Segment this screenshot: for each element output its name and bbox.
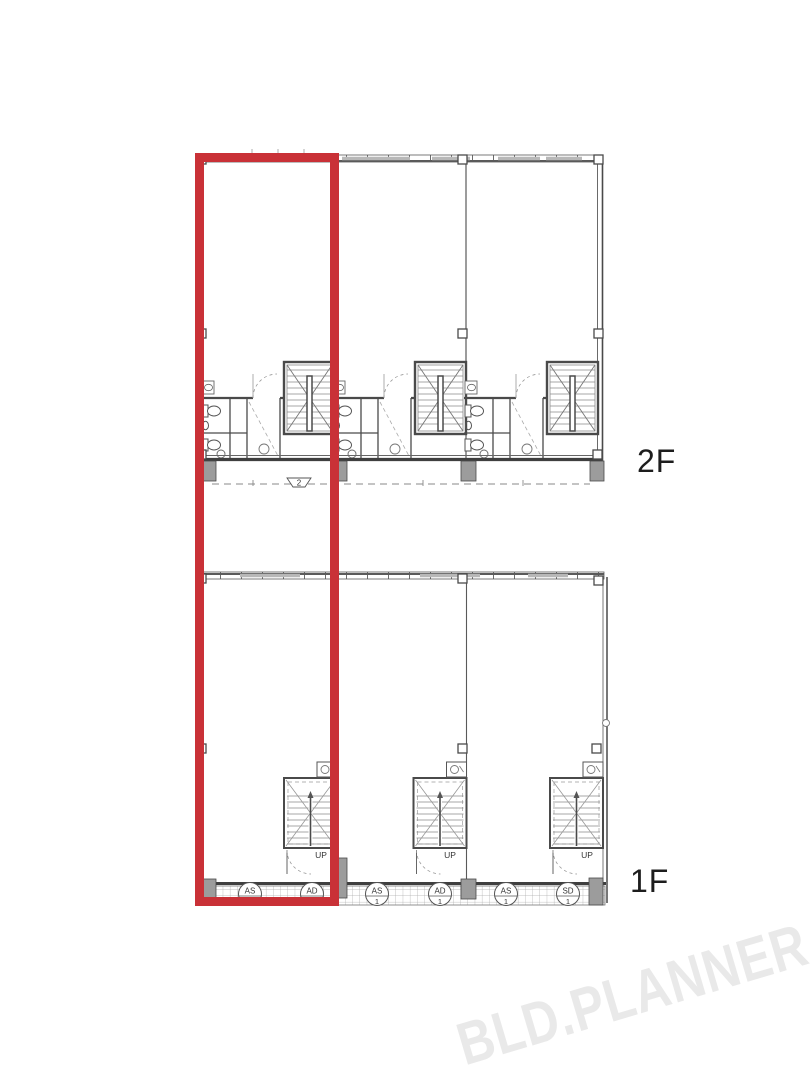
badge-code: AD [434,887,445,896]
floor-plans-drawing: 2 UP UP UP [0,0,810,1080]
porch-badge: SD 1 [557,883,580,907]
1f-unit-left-interior [284,762,337,874]
1f-unit-middle-interior [414,762,467,874]
2f-unit-middle-interior [332,362,466,460]
porch-badge: AS 1 [366,883,389,907]
badge-number: 1 [566,897,570,906]
2f-unit-left-interior [201,362,335,460]
floor-label-2f: 2F [637,443,676,480]
badge-number: 1 [375,897,379,906]
badge-code: AS [372,887,383,896]
stair-up-label: UP [315,850,327,860]
badge-code: SD [562,887,573,896]
balcony-marker-label: 2 [297,479,302,488]
stair-up-label: UP [444,850,456,860]
2f-balcony-level-marker: 2 [287,478,311,488]
1f-column-markers [197,574,603,753]
badge-number: 1 [438,897,442,906]
badge-number: 1 [504,897,508,906]
floor-label-1f: 1F [630,863,669,900]
badge-code: AS [245,887,256,896]
porch-badge: AS 1 [495,883,518,907]
floor-plan-1f: UP UP UP AS 1 [197,572,610,906]
porch-badge: AD 1 [429,883,452,907]
2f-columns [202,461,604,481]
2f-unit-right-interior [464,362,598,460]
2f-column-markers [197,155,603,459]
stair-up-label: UP [581,850,593,860]
floorplan-page: 2 UP UP UP [0,0,810,1080]
badge-code: AS [501,887,512,896]
1f-unit-right-interior [550,762,603,874]
badge-code: AD [306,887,317,896]
floor-plan-2f: 2 [197,149,604,488]
